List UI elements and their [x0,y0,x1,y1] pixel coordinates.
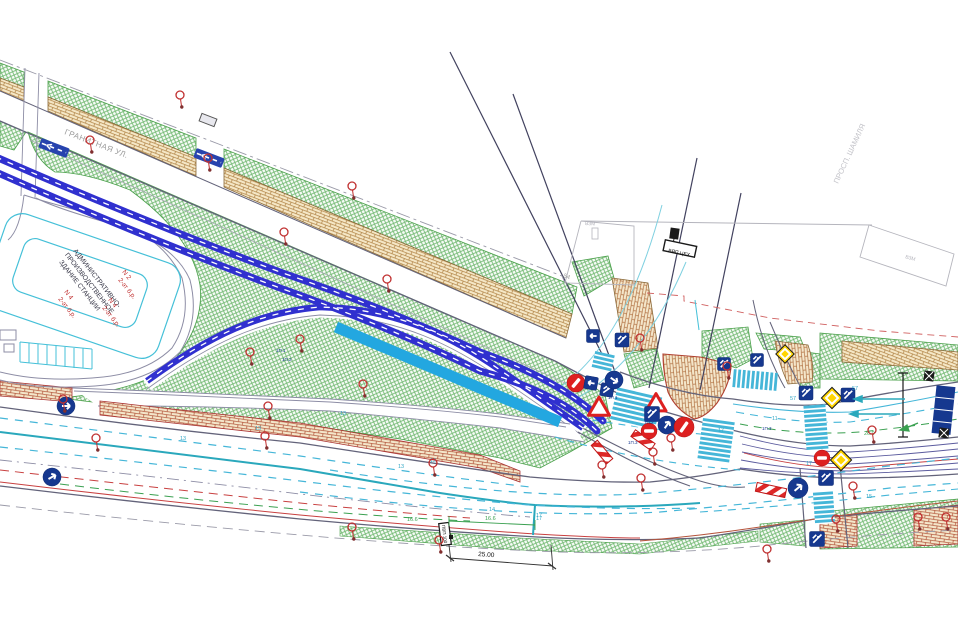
svg-text:13: 13 [398,464,404,470]
svg-text:57: 57 [790,396,796,402]
svg-text:57: 57 [852,386,858,392]
svg-text:1П.1: 1П.1 [608,395,618,400]
svg-text:13: 13 [180,436,186,442]
svg-text:11: 11 [772,416,778,422]
svg-text:25.00: 25.00 [478,551,495,559]
svg-text:17: 17 [806,461,812,467]
svg-text:16.6: 16.6 [485,516,496,522]
svg-text:ВЗМ: ВЗМ [585,221,596,227]
svg-text:1П.3: 1П.3 [762,426,772,431]
svg-text:17: 17 [536,516,542,522]
svg-text:15: 15 [866,494,872,500]
svg-text:1П.2: 1П.2 [282,357,292,362]
svg-text:13: 13 [340,411,346,417]
svg-text:13: 13 [255,426,261,432]
svg-text:1П.3: 1П.3 [628,440,638,445]
svg-text:16.6: 16.6 [407,517,418,523]
svg-text:17: 17 [718,428,724,434]
svg-text:1П.1: 1П.1 [276,348,286,353]
svg-text:14: 14 [489,507,495,513]
svg-text:1П.2: 1П.2 [644,420,654,425]
